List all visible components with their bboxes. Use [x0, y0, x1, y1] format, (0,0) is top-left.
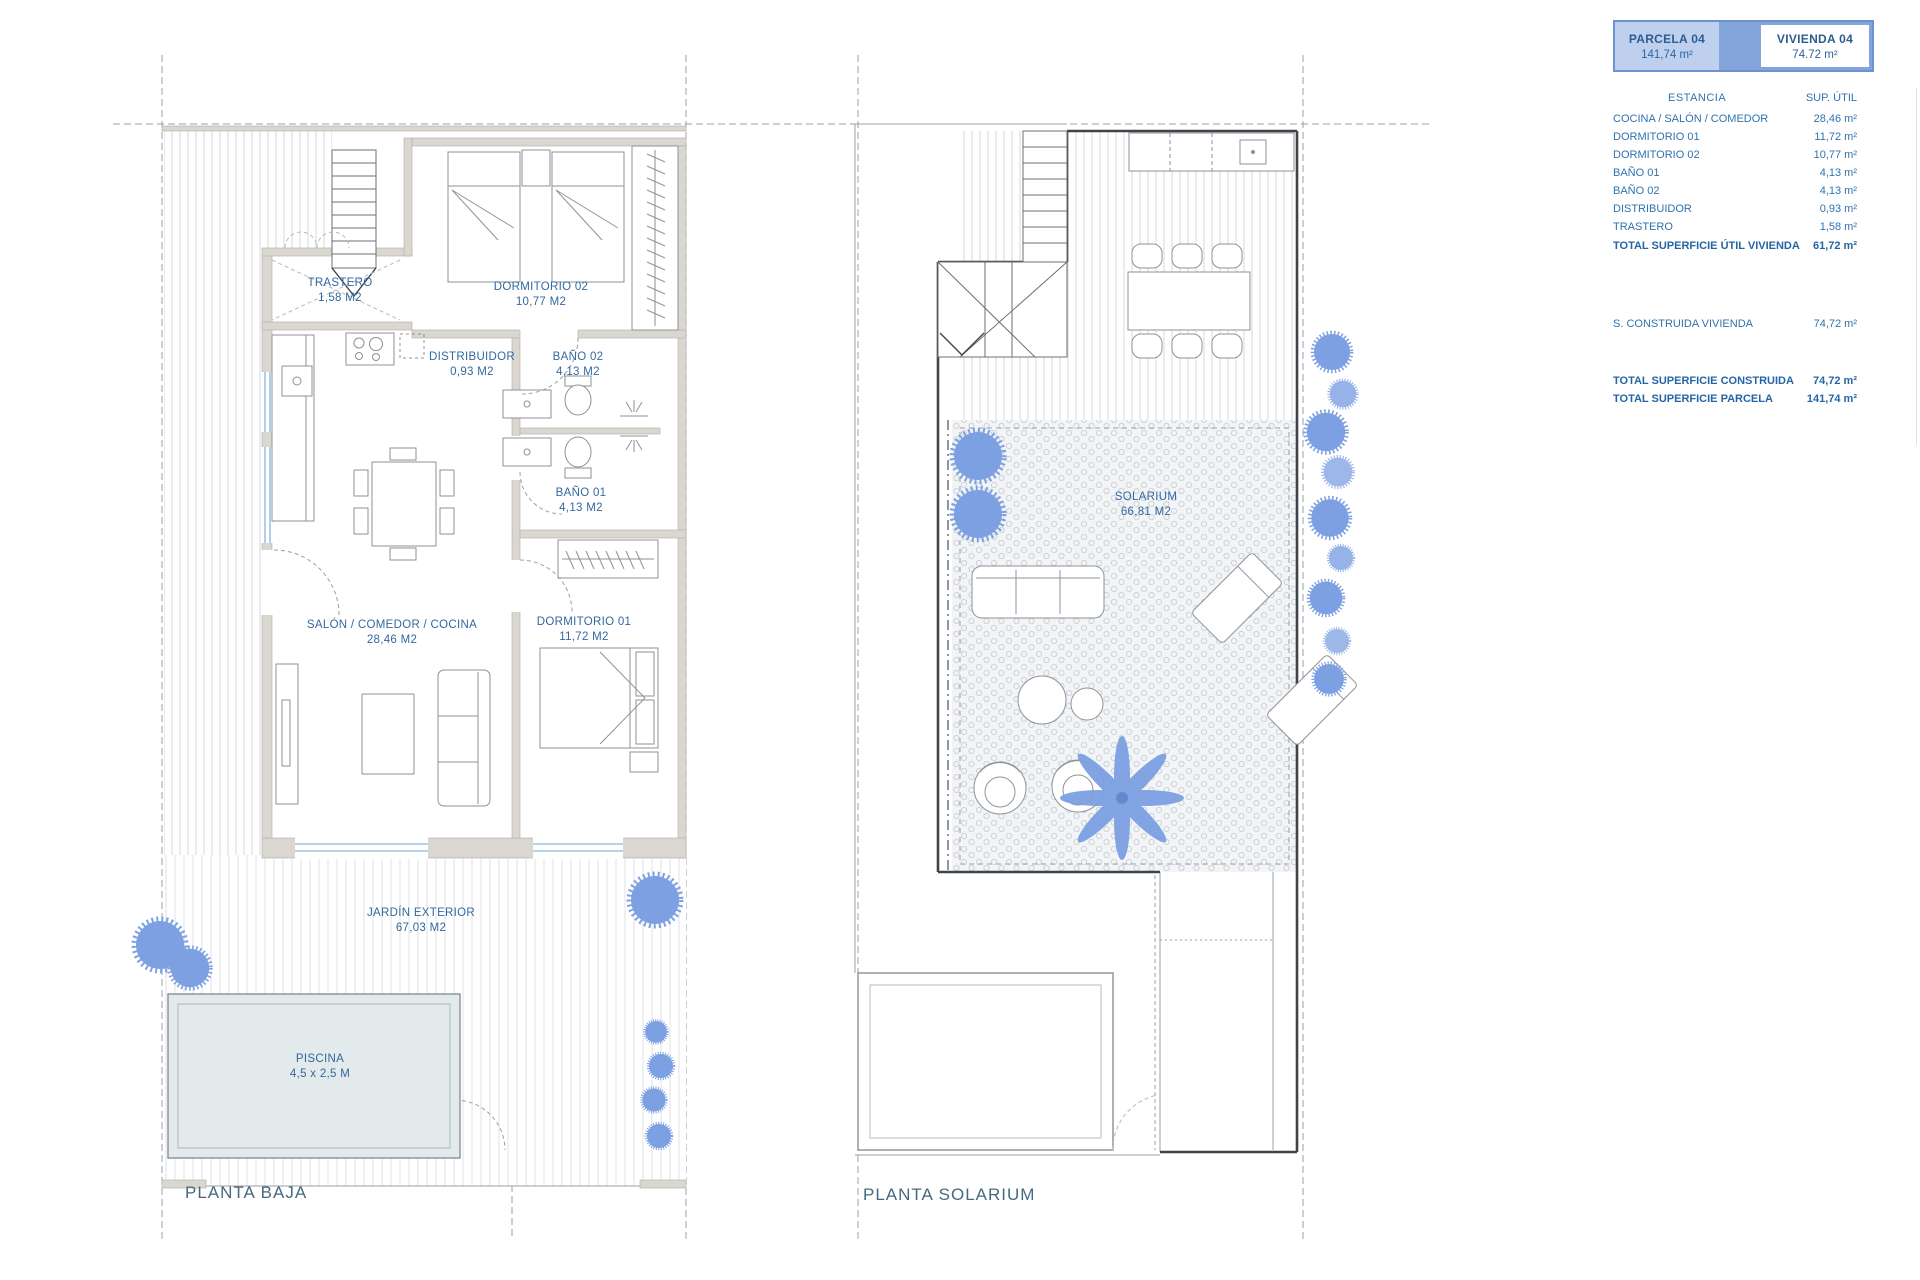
toilet-icon: [565, 437, 591, 467]
double-bed-icon: [540, 648, 658, 772]
legend-row-distribuidor: DISTRIBUIDOR 0,93 m²: [1613, 203, 1857, 217]
legend-gap: [1719, 22, 1761, 70]
room-label-dormitorio02: DORMITORIO 02 10,77 M2: [494, 280, 588, 310]
living-room-icons: [276, 664, 490, 806]
palm-icon: [1060, 736, 1184, 860]
bed-icon: [448, 150, 624, 282]
plan-title-baja: PLANTA BAJA: [185, 1183, 307, 1203]
floorplan-sheet: TRASTERO 1,58 M2 DORMITORIO 02 10,77 M2 …: [0, 0, 1920, 1280]
sofa-icon: [438, 670, 490, 806]
legend-row-dormitorio01: DORMITORIO 01 11,72 m²: [1613, 131, 1857, 145]
legend-row-trastero: TRASTERO 1,58 m²: [1613, 221, 1857, 235]
room-label-bano01: BAÑO 01 4,13 M2: [556, 486, 607, 516]
plan-title-solarium: PLANTA SOLARIUM: [863, 1185, 1035, 1205]
legend-row-cocina: COCINA / SALÓN / COMEDOR 28,46 m²: [1613, 113, 1857, 127]
legend-edge-line: [1916, 88, 1917, 445]
deck-texture: [164, 131, 332, 255]
room-label-solarium: SOLARIUM 66,81 M2: [1115, 490, 1177, 520]
round-table-icon: [1018, 676, 1066, 724]
room-label-dormitorio01: DORMITORIO 01 11,72 M2: [537, 615, 631, 645]
counter-icon: [1129, 133, 1294, 171]
stove-icon: [346, 333, 394, 365]
dining-table-icon: [1128, 244, 1250, 358]
nightstand-icon: [630, 752, 658, 772]
closet-icon: [558, 540, 658, 578]
planta-baja-drawing: [131, 126, 686, 1188]
legend-row-bano02: BAÑO 02 4,13 m²: [1613, 185, 1857, 199]
legend-row-bano01: BAÑO 01 4,13 m²: [1613, 167, 1857, 181]
room-label-trastero: TRASTERO 1,58 M2: [307, 276, 372, 306]
armchair-icon: [974, 762, 1026, 814]
vivienda-title: VIVIENDA 04: [1777, 32, 1853, 46]
legend-table-header: ESTANCIA SUP. ÚTIL: [1613, 92, 1857, 106]
vivienda-value: 74.72 m²: [1792, 49, 1837, 61]
parcela-value: 141,74 m²: [1641, 49, 1693, 61]
stairs-icon: [332, 150, 376, 296]
deck-texture: [164, 255, 262, 855]
coffee-table-icon: [362, 694, 414, 774]
room-label-distribuidor: DISTRIBUIDOR 0,93 M2: [429, 350, 515, 380]
toilet-icon: [565, 385, 591, 415]
legend-row-total-util: TOTAL SUPERFICIE ÚTIL VIVIENDA 61,72 m²: [1613, 240, 1857, 254]
legend-row-total-construida: TOTAL SUPERFICIE CONSTRUIDA 74,72 m²: [1613, 375, 1857, 389]
legend-row-dormitorio02: DORMITORIO 02 10,77 m²: [1613, 149, 1857, 163]
legend-header-box: PARCELA 04 141,74 m² VIVIENDA 04 74.72 m…: [1613, 20, 1874, 72]
sofa-icon: [972, 566, 1104, 618]
parcela-cell: PARCELA 04 141,74 m²: [1615, 22, 1719, 70]
vivienda-cell: VIVIENDA 04 74.72 m²: [1761, 25, 1869, 67]
closet-icon: [632, 146, 678, 330]
solarium-pool-icon: [858, 973, 1113, 1150]
room-label-jardin: JARDÍN EXTERIOR 67,03 M2: [367, 906, 475, 936]
room-label-bano02: BAÑO 02 4,13 M2: [553, 350, 604, 380]
dining-table-icon: [354, 448, 454, 560]
legend-row-construida: S. CONSTRUIDA VIVIENDA 74,72 m²: [1613, 318, 1857, 332]
room-label-piscina: PISCINA 4,5 x 2,5 M: [290, 1052, 350, 1082]
planta-solarium-drawing: [855, 124, 1358, 1155]
parcela-title: PARCELA 04: [1629, 32, 1705, 46]
room-label-salon: SALÓN / COMEDOR / COCINA 28,46 M2: [307, 618, 477, 648]
round-table-icon: [1071, 688, 1103, 720]
bathroom-icons: [503, 376, 648, 478]
legend-row-total-parcela: TOTAL SUPERFICIE PARCELA 141,74 m²: [1613, 393, 1857, 407]
